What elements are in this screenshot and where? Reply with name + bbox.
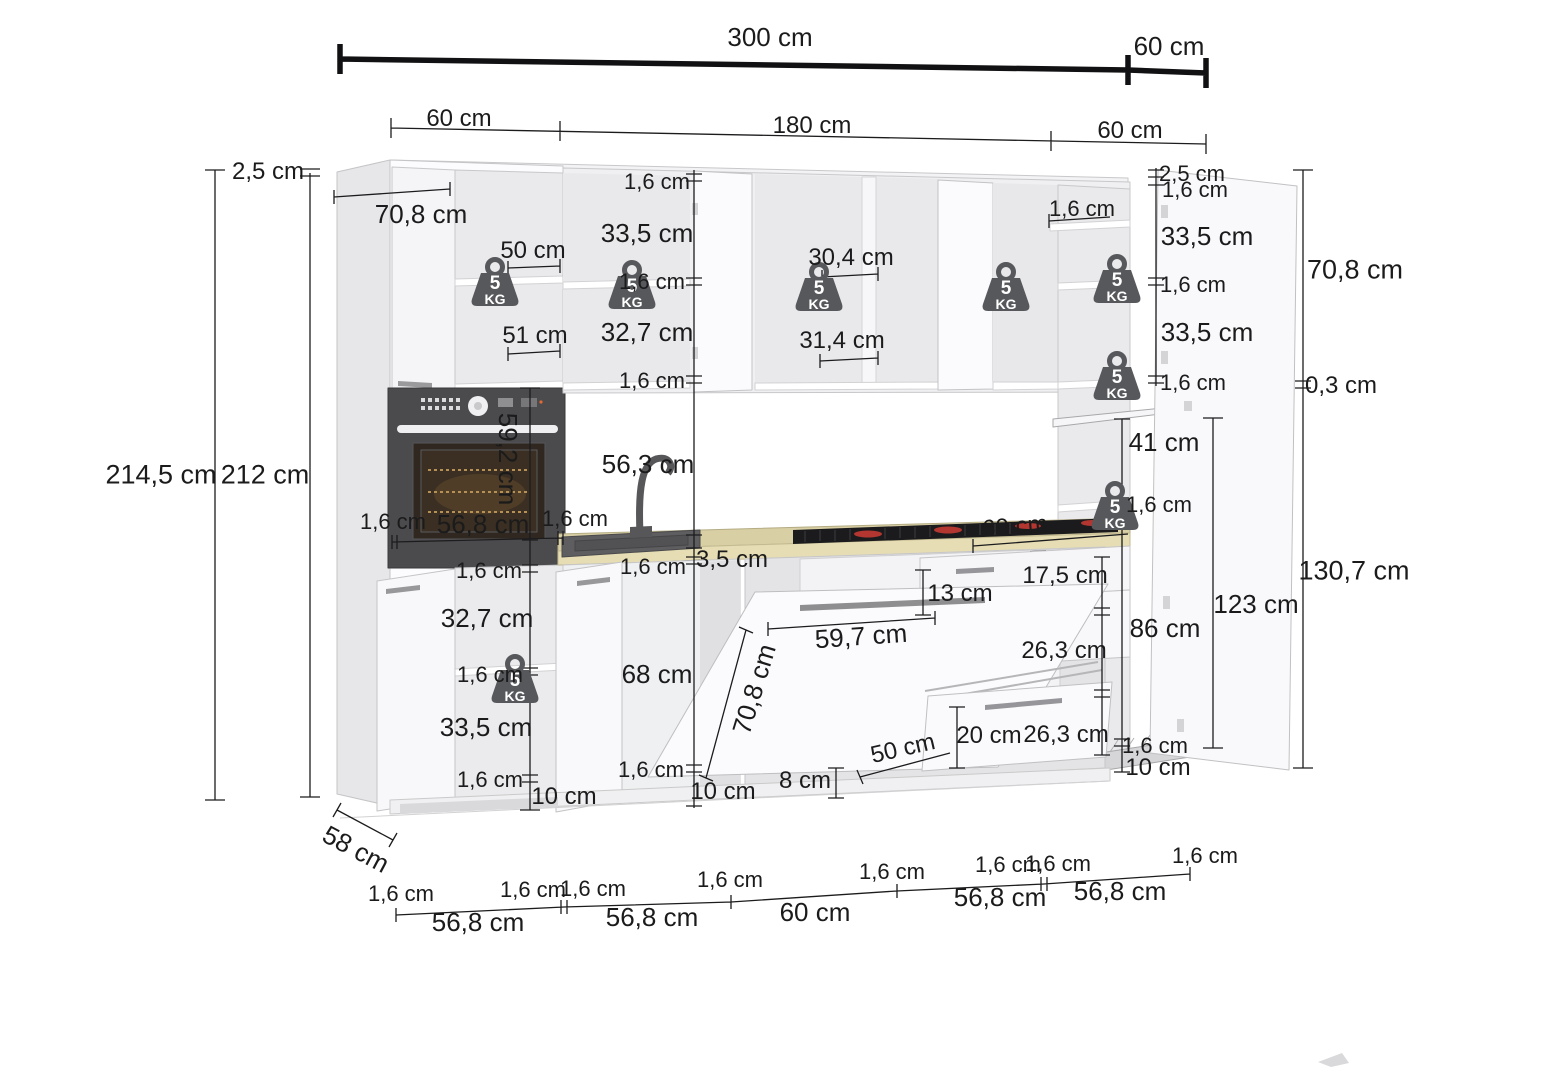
kitchen-drawing <box>0 0 1555 1080</box>
oven-display <box>498 398 513 407</box>
primary-dimension-line <box>340 44 1206 88</box>
cabinet-artwork <box>337 160 1349 1067</box>
oven-handle <box>397 425 558 433</box>
kitchen-dimension-diagram: 5 KG 5 KG 5 KG 5 KG 5 KG <box>0 0 1555 1080</box>
faucet <box>640 458 671 534</box>
drawer-3-open <box>922 682 1112 771</box>
sink-base-door <box>556 562 622 812</box>
base-door-left <box>377 569 455 811</box>
maker-mark <box>1318 1053 1349 1067</box>
right-tall-door-open <box>1150 170 1297 770</box>
wall-door-open <box>694 171 752 392</box>
upper-door <box>392 167 455 393</box>
